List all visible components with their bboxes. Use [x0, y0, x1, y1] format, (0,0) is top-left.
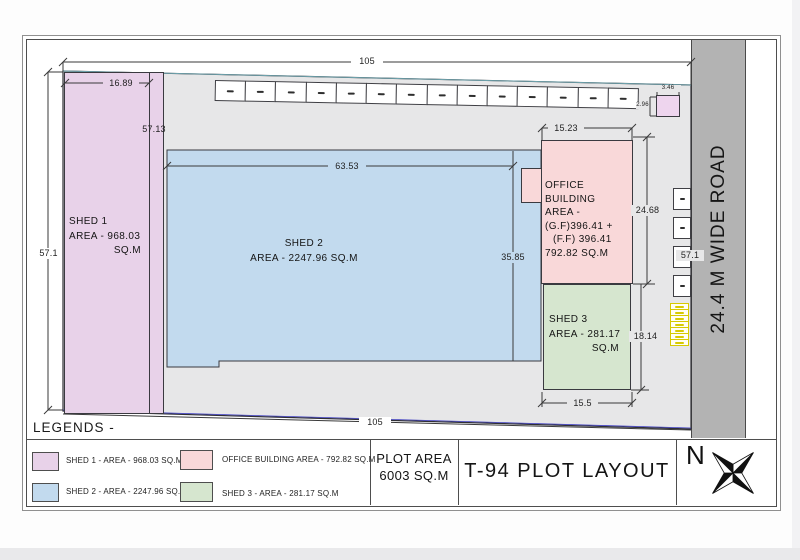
stall-mark-icon — [257, 90, 264, 92]
stall-mark-icon — [227, 90, 234, 92]
shed2-label: SHED 2 AREA - 2247.96 SQ.M — [214, 237, 394, 266]
stall — [426, 84, 458, 106]
stall-mark-icon — [318, 91, 325, 93]
utility-box — [656, 95, 680, 117]
stall-mark-icon — [675, 306, 684, 308]
stall-mark-icon — [620, 97, 627, 99]
stall-mark-icon — [675, 312, 684, 314]
plot-area-box: PLOT AREA 6003 SQ.M — [370, 450, 458, 484]
dim-shed1-width: 16.89 — [103, 78, 139, 89]
office-annex — [521, 168, 542, 203]
rstall — [673, 188, 691, 210]
dim-utility-height: 2.96 — [636, 102, 649, 109]
stall-mark-icon — [589, 97, 596, 99]
ycell — [670, 339, 689, 346]
band-top-line — [27, 439, 776, 440]
north-compass-icon — [702, 442, 764, 504]
legend-swatch-shed3 — [180, 482, 213, 502]
office-label: OFFICE BUILDING AREA - (G.F)396.41 + (F.… — [545, 179, 633, 260]
legend-label-shed2: SHED 2 - AREA - 2247.96 SQ.M — [66, 482, 187, 502]
dim-office-width: 15.23 — [548, 123, 584, 134]
yellow-strip — [670, 303, 689, 346]
road-label: 24.4 M WIDE ROAD — [708, 39, 730, 439]
legend-label-shed1: SHED 1 - AREA - 968.03 SQ.M — [66, 451, 183, 471]
stall-mark-icon — [680, 198, 685, 200]
dim-shed3-width: 15.5 — [567, 398, 598, 409]
stall — [607, 88, 639, 110]
dim-bottom-width: 105 — [359, 417, 391, 428]
stall-mark-icon — [287, 91, 294, 93]
stall-column-right — [673, 188, 691, 297]
stall — [487, 85, 519, 107]
legend-swatch-shed2 — [32, 483, 59, 502]
stall — [305, 82, 337, 104]
legend-swatch-shed1 — [32, 452, 59, 471]
stall — [456, 85, 488, 107]
stall-mark-icon — [529, 96, 536, 98]
legend-swatch-office — [180, 450, 213, 470]
stall — [577, 87, 609, 109]
stall — [275, 81, 307, 103]
stall-mark-icon — [499, 95, 506, 97]
stall — [215, 80, 247, 102]
shed1-label: SHED 1 AREA - 968.03 SQ.M — [69, 215, 147, 259]
plot-layout-sheet: 24.4 M WIDE ROAD — [0, 0, 800, 560]
stall-mark-icon — [675, 324, 684, 326]
stall-mark-icon — [675, 342, 684, 344]
legends-heading: LEGENDS - — [33, 420, 115, 435]
dim-shed1-height: 57.13 — [136, 124, 172, 135]
stall-mark-icon — [675, 336, 684, 338]
stall-mark-icon — [469, 94, 476, 96]
rstall — [673, 217, 691, 239]
stall — [547, 86, 579, 108]
rstall — [673, 275, 691, 297]
stall — [396, 83, 428, 105]
dim-top-width: 105 — [351, 56, 383, 67]
dim-office-height: 24.68 — [631, 205, 664, 216]
viewport-edge-bottom — [0, 548, 800, 560]
stall-mark-icon — [559, 96, 566, 98]
stall-mark-icon — [408, 93, 415, 95]
stall-mark-icon — [348, 92, 355, 94]
legend-label-office: OFFICE BUILDING AREA - 792.82 SQ.M — [222, 450, 376, 470]
dim-left-height: 57.1 — [35, 248, 62, 259]
dim-shed2-width: 63.53 — [328, 161, 366, 172]
stall — [245, 81, 277, 103]
dim-right-height: 57.1 — [676, 250, 704, 261]
dim-shed3-height: 18.14 — [629, 331, 662, 342]
stall — [517, 86, 549, 108]
legend-label-shed3: SHED 3 - AREA - 281.17 SQ.M — [222, 484, 339, 504]
shed3-label: SHED 3 AREA - 281.17 SQ.M — [549, 313, 629, 357]
dim-utility-width: 3.46 — [655, 85, 681, 92]
stall-mark-icon — [675, 330, 684, 332]
stall-mark-icon — [438, 94, 445, 96]
stall-mark-icon — [378, 93, 385, 95]
page-title: T-94 PLOT LAYOUT — [458, 460, 676, 483]
viewport-edge-right — [792, 0, 800, 548]
stall-mark-icon — [680, 227, 685, 229]
dim-shed2-height: 35.85 — [494, 252, 532, 263]
stall — [366, 83, 398, 105]
band-divider-3 — [676, 439, 677, 505]
stall-mark-icon — [680, 285, 685, 287]
stall — [335, 82, 367, 104]
stall-mark-icon — [675, 318, 684, 320]
